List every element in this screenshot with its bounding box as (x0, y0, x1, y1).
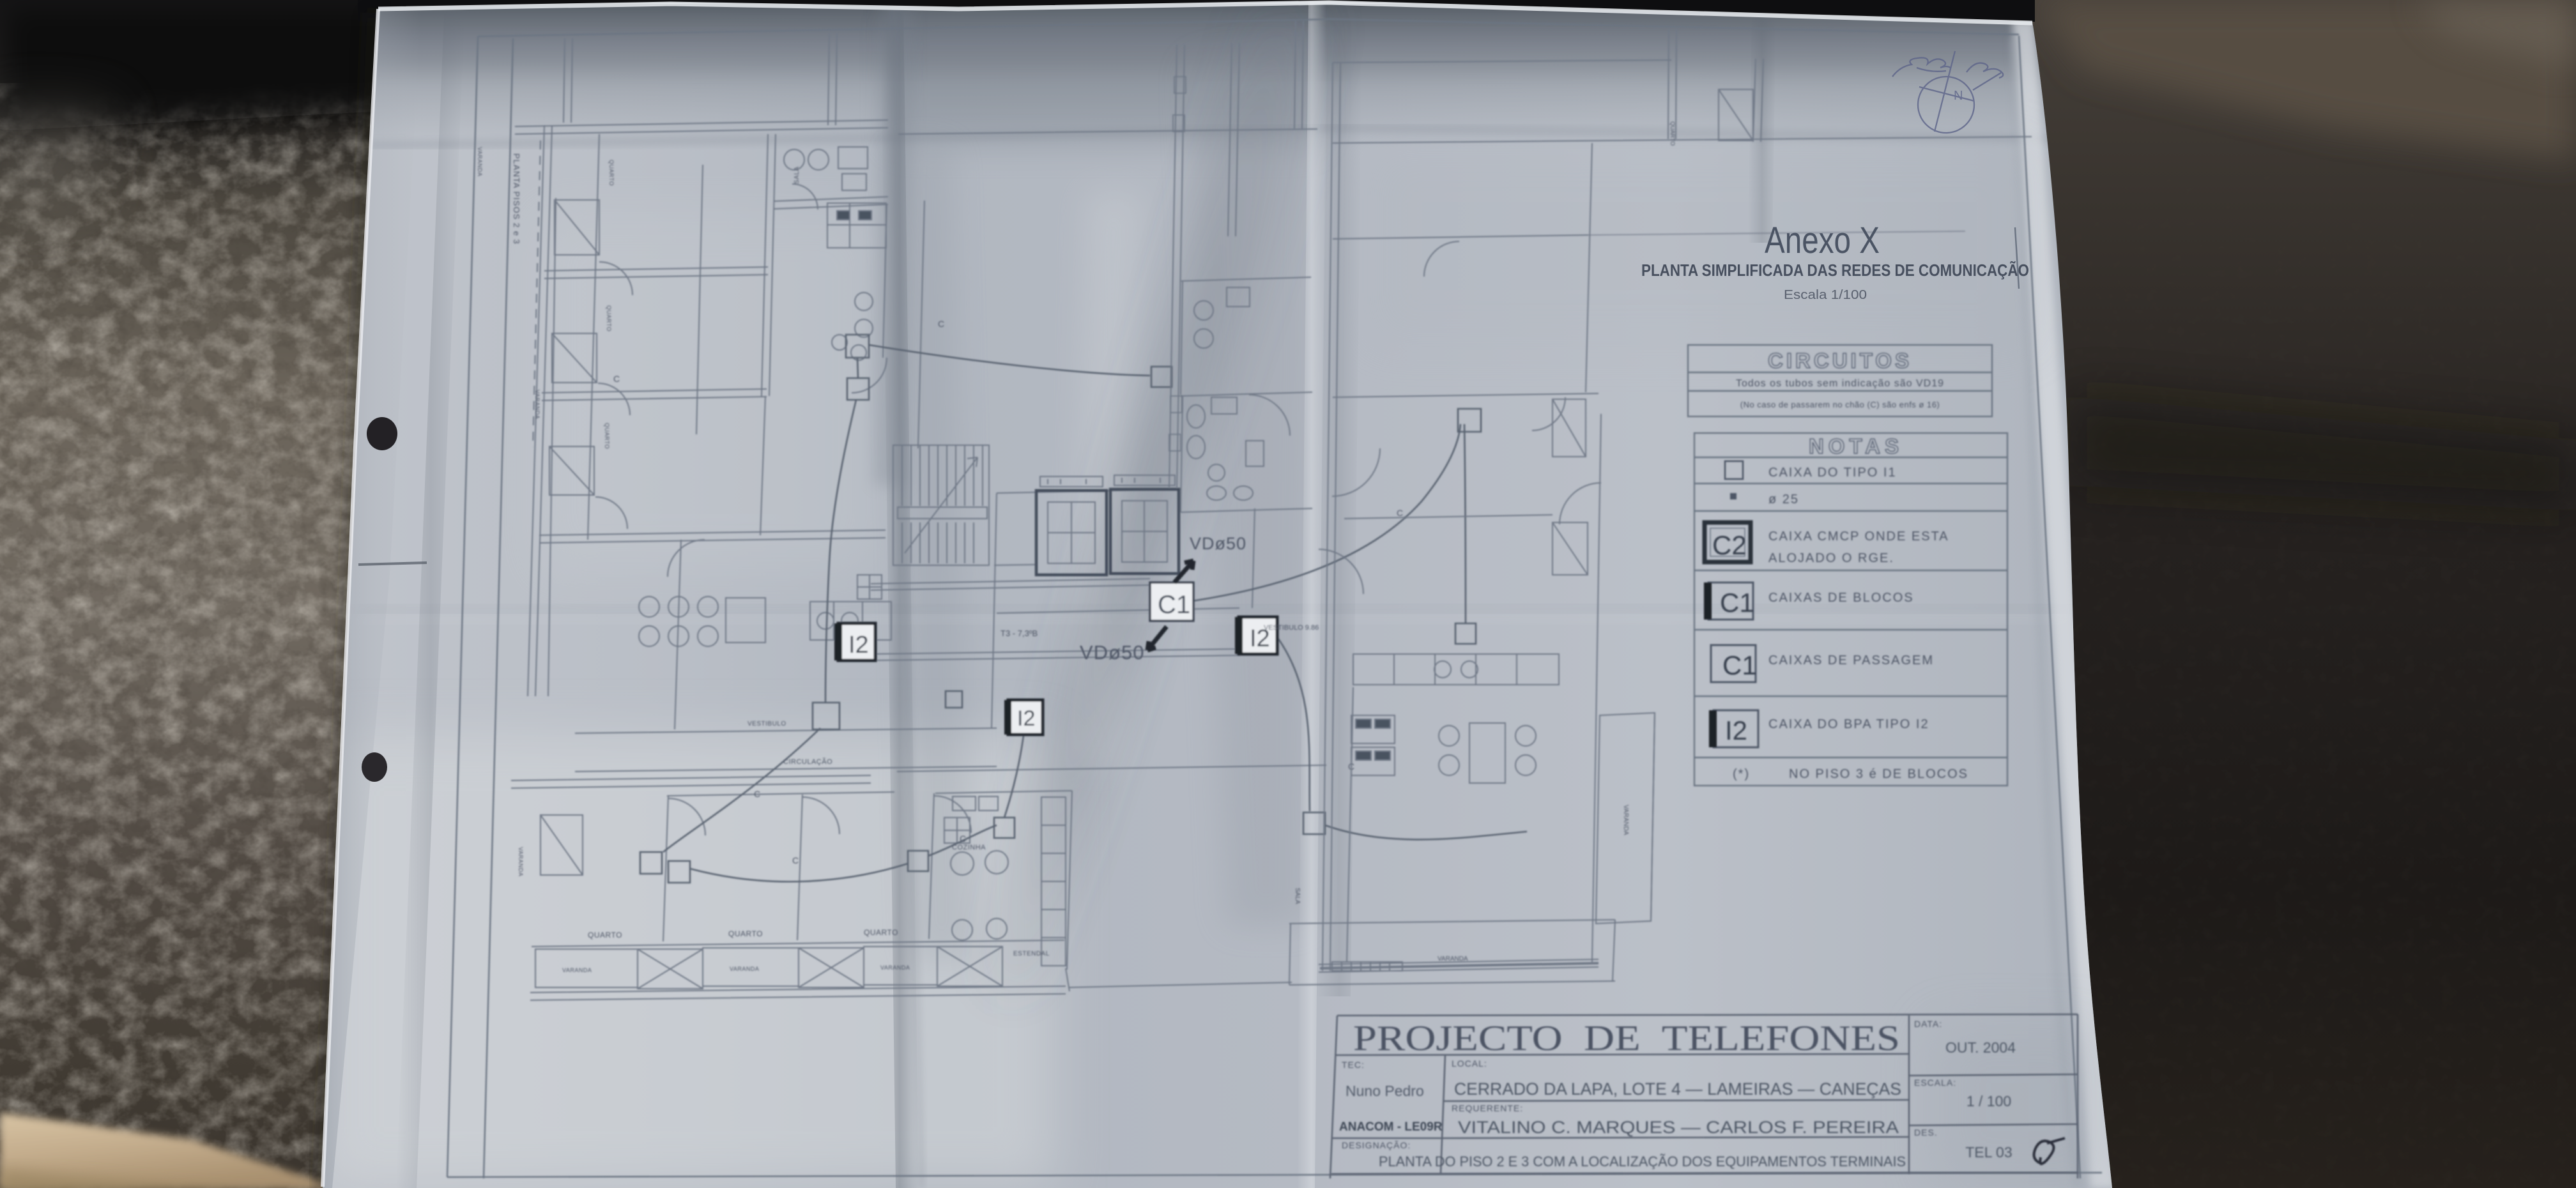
svg-text:PLANTA PISOS 2 e 3: PLANTA PISOS 2 e 3 (512, 153, 521, 245)
svg-text:Todos os tubos sem indicaç: Todos os tubos sem indicação são VD19 (1736, 378, 1944, 389)
svg-text:VDø50: VDø50 (1190, 534, 1246, 553)
svg-text:PLANTA SIMPLIFICADA DAS REDES: PLANTA SIMPLIFICADA DAS REDES DE COMUNIC… (1641, 261, 2029, 280)
svg-text:VARANDA: VARANDA (1622, 805, 1629, 835)
svg-text:PROJECTO DE TELEFONES: PROJECTO DE TELEFONES (1353, 1019, 1900, 1058)
svg-text:VARANDA: VARANDA (477, 147, 483, 176)
svg-text:C2: C2 (1712, 530, 1747, 560)
svg-text:(No caso de passarem no c: (No caso de passarem no chão (C) são enf… (1740, 400, 1940, 409)
svg-text:CIRCULAÇÃO: CIRCULAÇÃO (783, 758, 832, 766)
svg-text:Nuno Pedro: Nuno Pedro (1345, 1083, 1424, 1099)
svg-text:C: C (960, 834, 966, 844)
svg-text:ø 25: ø 25 (1768, 492, 1799, 506)
svg-text:ESTENDAL: ESTENDAL (1013, 950, 1050, 957)
svg-text:CAIXA CMCP ONDE ESTA: CAIXA CMCP ONDE ESTA (1768, 529, 1949, 544)
svg-text:DESIGNAÇÃO:: DESIGNAÇÃO: (1342, 1140, 1411, 1150)
svg-text:VDø50: VDø50 (1080, 641, 1144, 664)
svg-text:SALA: SALA (1294, 888, 1301, 904)
svg-text:ALOJADO O RGE.: ALOJADO O RGE. (1768, 551, 1894, 565)
svg-text:ANACOM - LE09R: ANACOM - LE09R (1339, 1120, 1443, 1134)
svg-text:DES.: DES. (1914, 1127, 1938, 1138)
svg-text:VESTIBULO: VESTIBULO (747, 720, 786, 727)
svg-text:VITALINO C. MARQUES — CARL: VITALINO C. MARQUES — CARLOS F. PEREIRA (1458, 1118, 1899, 1137)
svg-text:C: C (754, 789, 760, 799)
svg-text:PLANTA DO PISO 2 E 3 COM: PLANTA DO PISO 2 E 3 COM A LOCALIZAÇÃO D… (1379, 1154, 1906, 1169)
svg-text:QUARTO: QUARTO (608, 160, 615, 186)
svg-text:Escala 1/100: Escala 1/100 (1784, 288, 1867, 302)
svg-text:QUARTO: QUARTO (588, 931, 622, 940)
svg-text:QUARTO: QUARTO (1669, 121, 1676, 146)
svg-text:DATA:: DATA: (1914, 1019, 1942, 1029)
svg-text:VARANDA: VARANDA (534, 390, 540, 419)
svg-text:QUARTO: QUARTO (606, 305, 612, 331)
svg-text:I2: I2 (1725, 715, 1747, 745)
svg-text:T3 - 7,3ºB: T3 - 7,3ºB (1000, 628, 1038, 638)
svg-text:C: C (938, 319, 944, 329)
svg-text:CAIXA DO BPA TIPO I2: CAIXA DO BPA TIPO I2 (1768, 717, 1929, 731)
svg-text:NOTAS: NOTAS (1809, 434, 1903, 458)
svg-text:CAIXAS DE PASSAGEM: CAIXAS DE PASSAGEM (1768, 653, 1934, 667)
svg-text:C: C (792, 855, 799, 865)
svg-text:VARANDA: VARANDA (562, 967, 592, 973)
svg-text:C1: C1 (1720, 588, 1754, 618)
svg-text:CIRCUITOS: CIRCUITOS (1768, 349, 1912, 372)
svg-text:VARANDA: VARANDA (880, 964, 910, 971)
svg-text:COZINHA: COZINHA (952, 844, 986, 851)
svg-text:C1: C1 (1158, 591, 1190, 619)
svg-text:VARANDA: VARANDA (1437, 956, 1468, 963)
svg-text:VARANDA: VARANDA (517, 847, 524, 876)
svg-text:CERRADO DA LAPA, LOTE 4 —: CERRADO DA LAPA, LOTE 4 — LAMEIRAS — CAN… (1454, 1079, 1901, 1099)
svg-text:CAIXAS DE BLOCOS: CAIXAS DE BLOCOS (1768, 591, 1914, 605)
svg-text:TEC:: TEC: (1342, 1060, 1365, 1070)
svg-text:C: C (613, 374, 620, 384)
svg-text:ESCALA:: ESCALA: (1914, 1078, 1956, 1088)
svg-text:REQUERENTE:: REQUERENTE: (1452, 1103, 1523, 1113)
svg-text:N: N (1954, 89, 1963, 103)
svg-text:QUARTO: QUARTO (604, 423, 610, 449)
svg-text:Anexo X: Anexo X (1765, 220, 1880, 261)
svg-text:1 / 100: 1 / 100 (1966, 1093, 2011, 1109)
svg-text:TEL 03: TEL 03 (1965, 1144, 2012, 1161)
svg-text:I2: I2 (848, 632, 869, 659)
svg-text:OUT. 2004: OUT. 2004 (1945, 1039, 2016, 1056)
svg-text:QUARTO: QUARTO (728, 929, 763, 938)
svg-text:C1: C1 (1722, 650, 1757, 680)
svg-text:QUARTO: QUARTO (864, 928, 898, 937)
svg-text:VARANDA: VARANDA (730, 966, 759, 972)
svg-text:C: C (1397, 508, 1403, 518)
svg-text:VESTIBULO 9.86: VESTIBULO 9.86 (1264, 624, 1319, 632)
svg-text:CAIXA DO TIPO I1: CAIXA DO TIPO I1 (1768, 466, 1897, 480)
svg-text:SALA: SALA (793, 166, 801, 184)
svg-text:LOCAL:: LOCAL: (1452, 1058, 1487, 1069)
svg-text:I2: I2 (1017, 706, 1035, 731)
svg-text:(*): (*) (1733, 767, 1750, 781)
svg-text:NO PISO 3 é DE BLOCOS: NO PISO 3 é DE BLOCOS (1789, 767, 1968, 781)
